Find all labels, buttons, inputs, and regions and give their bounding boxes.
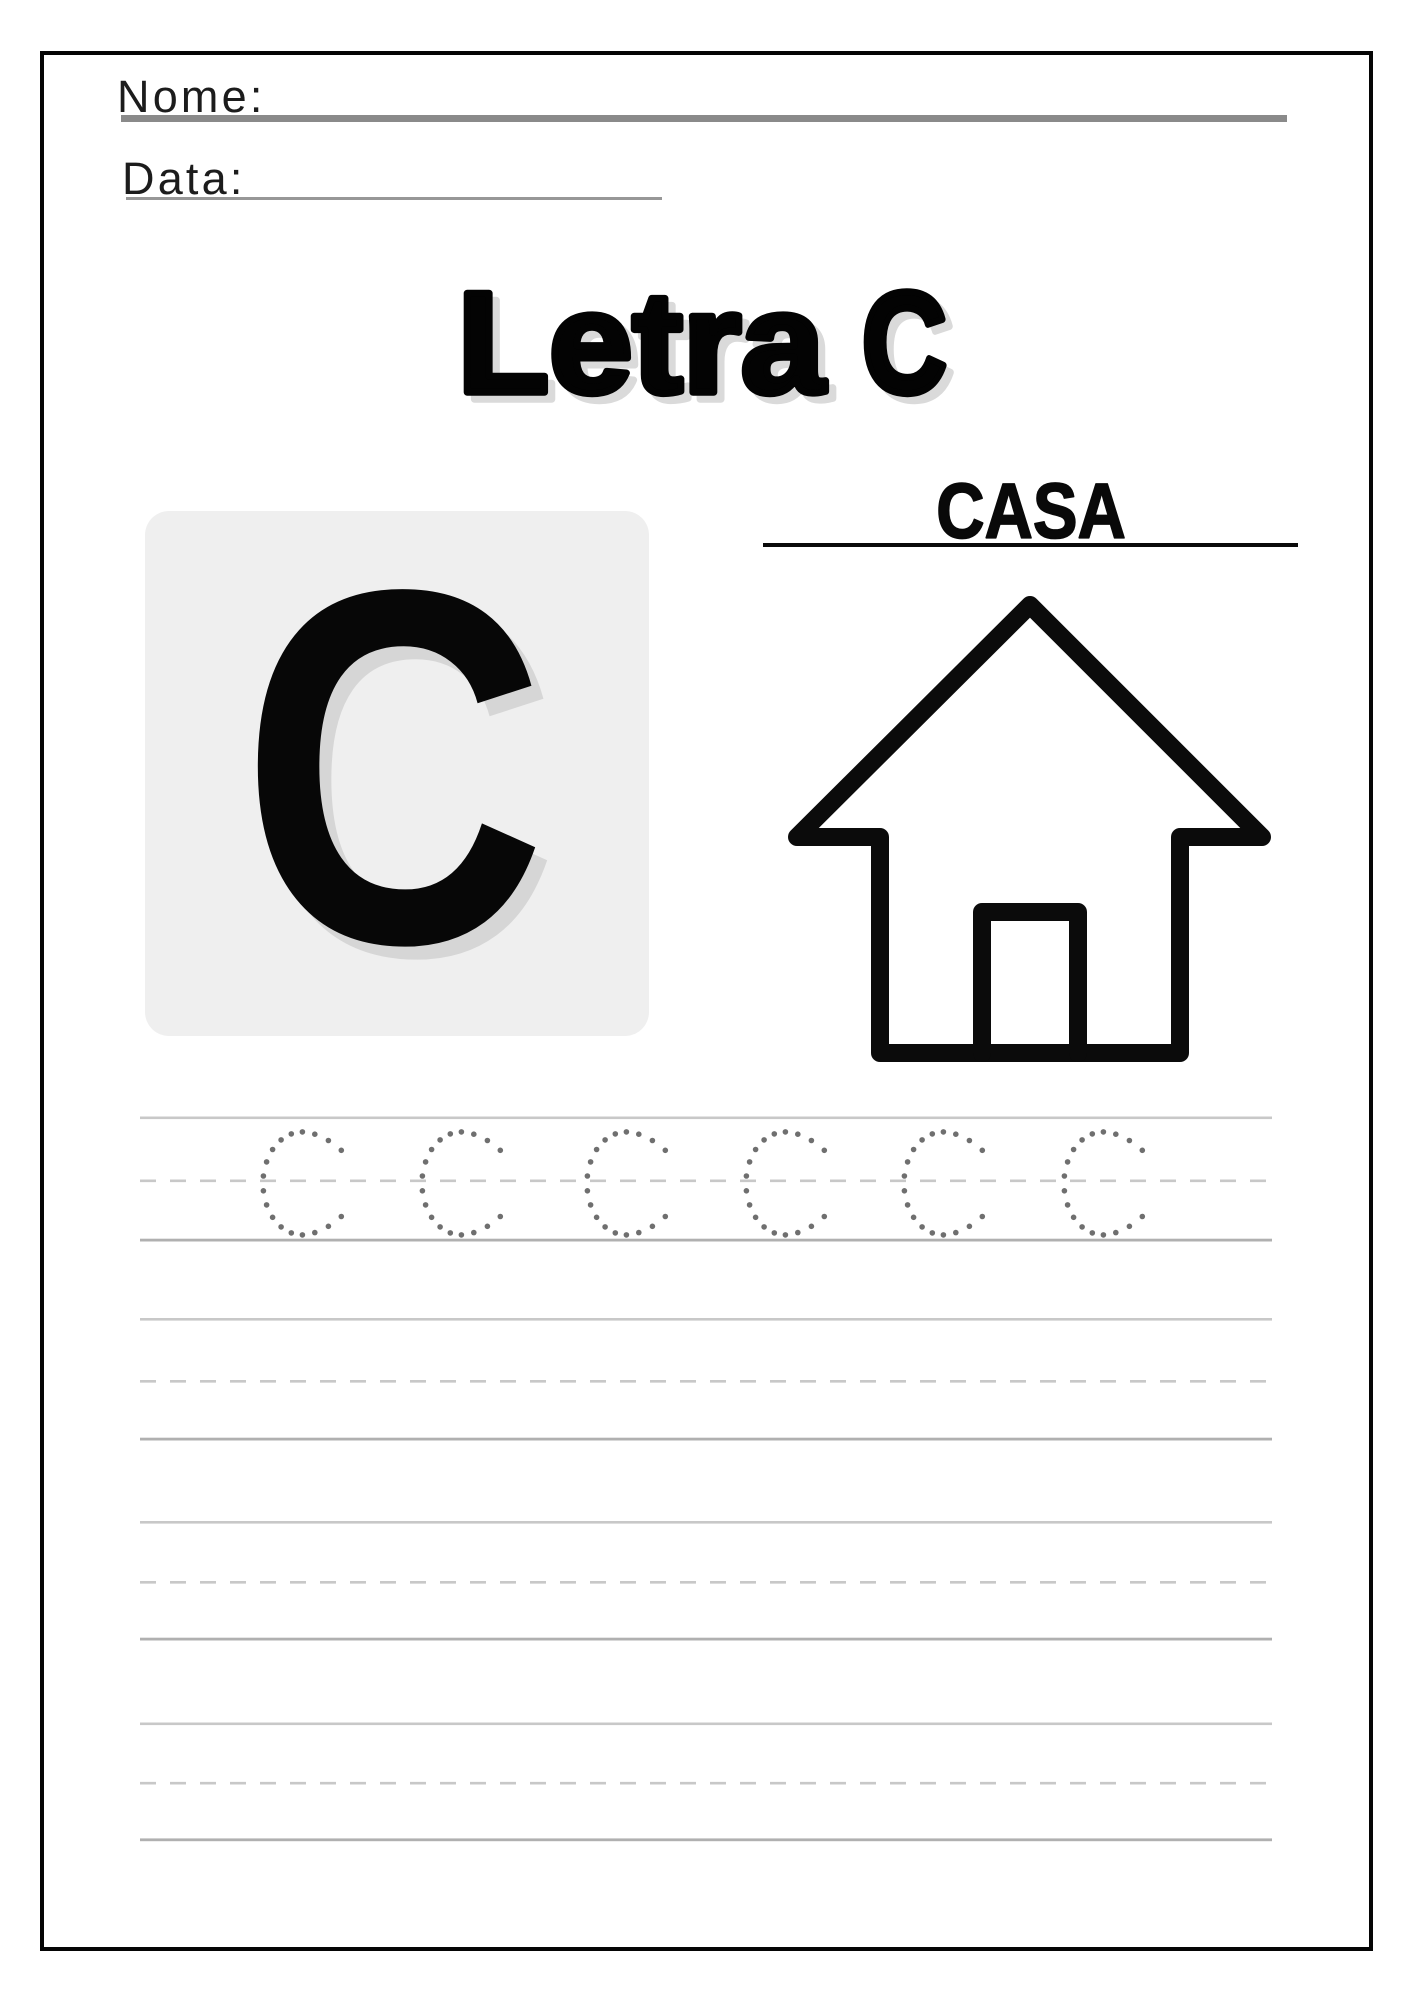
svg-text:C: C bbox=[240, 511, 546, 1036]
svg-text:CASA: CASA bbox=[936, 468, 1126, 555]
svg-text:C: C bbox=[862, 262, 947, 423]
svg-text:Letra: Letra bbox=[457, 263, 825, 424]
